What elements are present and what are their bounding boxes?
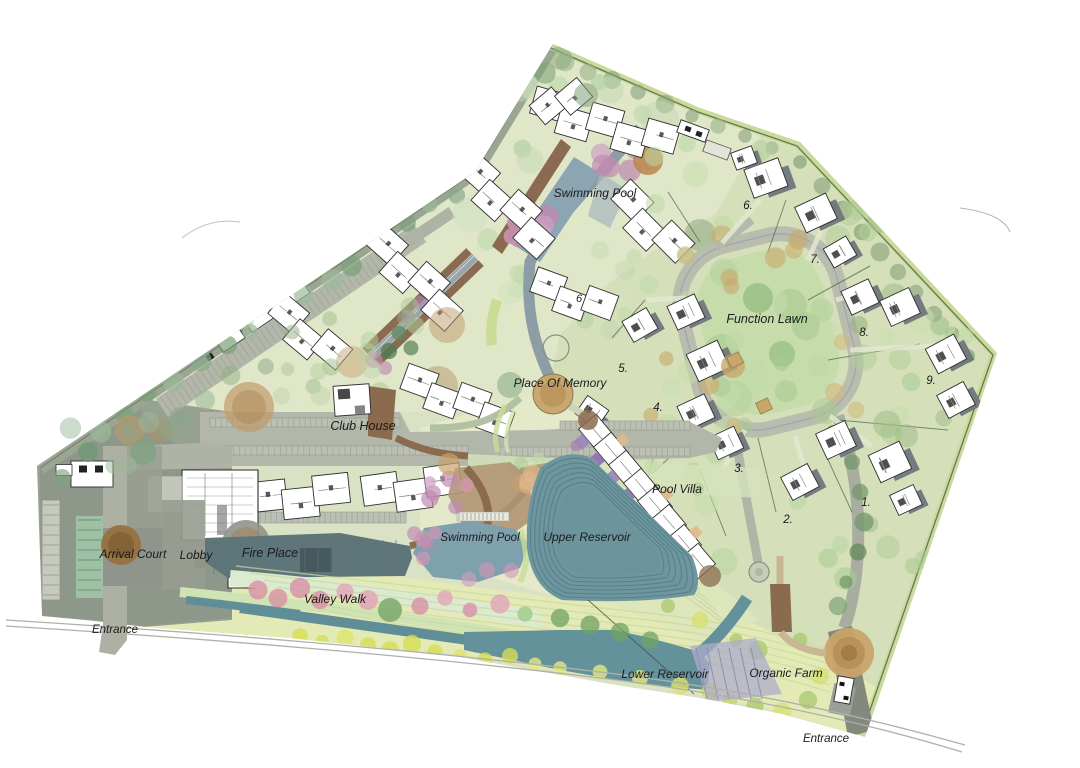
svg-text:Pool Villa: Pool Villa: [652, 482, 702, 496]
svg-text:7.: 7.: [810, 254, 820, 266]
svg-text:Arrival Court: Arrival Court: [99, 547, 167, 561]
svg-text:Lobby: Lobby: [180, 548, 214, 562]
svg-text:Swimming Pool: Swimming Pool: [554, 186, 637, 200]
svg-text:Entrance: Entrance: [803, 733, 849, 745]
svg-text:Function Lawn: Function Lawn: [726, 312, 807, 326]
svg-text:Fire Place: Fire Place: [242, 546, 298, 560]
svg-text:3.: 3.: [734, 463, 744, 475]
svg-text:Lower Reservoir: Lower Reservoir: [621, 667, 709, 681]
svg-text:2.: 2.: [782, 514, 793, 526]
svg-text:Valley Walk: Valley Walk: [304, 592, 367, 606]
svg-text:6: 6: [576, 293, 583, 305]
svg-text:4.: 4.: [653, 402, 663, 414]
svg-text:Swimming Pool: Swimming Pool: [440, 532, 520, 544]
svg-text:5.: 5.: [618, 363, 628, 375]
svg-text:Place Of Memory: Place Of Memory: [514, 376, 608, 390]
svg-text:9.: 9.: [926, 375, 936, 387]
svg-text:Club House: Club House: [330, 419, 395, 433]
svg-text:6.: 6.: [743, 200, 753, 212]
svg-text:1.: 1.: [861, 497, 871, 509]
svg-text:Entrance: Entrance: [92, 624, 138, 636]
svg-text:Organic Farm: Organic Farm: [749, 666, 822, 680]
svg-text:Upper Reservoir: Upper Reservoir: [543, 530, 631, 544]
svg-text:8.: 8.: [859, 327, 869, 339]
